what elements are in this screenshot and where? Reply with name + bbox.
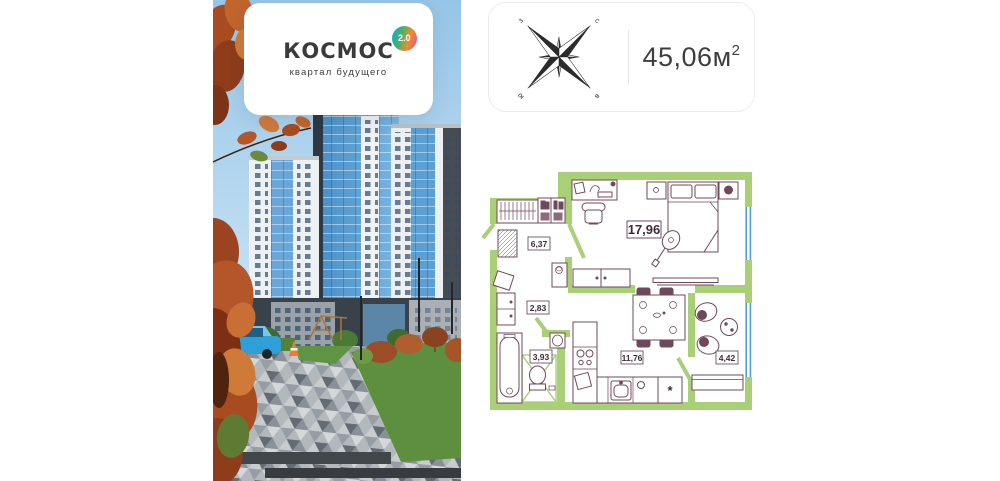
tv-console	[653, 278, 718, 285]
cutting-board	[574, 372, 591, 389]
apartment-listing-page: КОСМОС 2.0 квартал будущего	[0, 0, 1000, 481]
summary-card: з с ю в 45,06м2	[488, 2, 755, 112]
doormat	[498, 230, 517, 257]
dining-table	[633, 295, 685, 340]
logo-version-badge: 2.0	[392, 26, 417, 51]
room-label-corridor: 2,83	[530, 303, 547, 313]
room-label-hallway: 6,37	[531, 239, 548, 249]
shoe-cabinet	[538, 198, 565, 223]
room-label-bathroom: 3,93	[533, 352, 550, 362]
building-photo-panel: КОСМОС 2.0 квартал будущего	[213, 0, 461, 481]
wardrobe	[497, 200, 538, 223]
pillow	[695, 185, 716, 198]
logo-subtitle: квартал будущего	[290, 67, 388, 78]
corridor-cabinet	[497, 293, 515, 325]
logo-title: КОСМОС	[283, 39, 394, 63]
compass-rose-icon: з с ю в	[513, 11, 605, 103]
balcony-chair-1	[693, 300, 720, 324]
logo: КОСМОС 2.0	[283, 41, 394, 63]
entry-door-swing	[483, 224, 494, 238]
logo-card: КОСМОС 2.0 квартал будущего	[244, 3, 433, 115]
balcony-table	[721, 319, 738, 336]
sideboard	[573, 269, 630, 287]
bathtub	[497, 333, 522, 403]
dining-set	[633, 288, 685, 347]
compass-west-label: з	[516, 15, 525, 24]
balcony-bench	[692, 375, 743, 390]
compass-north-label: с	[593, 16, 602, 25]
pillow	[671, 185, 692, 198]
total-area: 45,06м2	[629, 42, 754, 73]
desk-chair	[582, 203, 605, 224]
floor-plan: 17,96 6,37 2,83 3,93 11,76 4,42 *	[478, 172, 754, 410]
kitchen-sink	[611, 381, 631, 400]
area-value: 45,06м	[643, 42, 732, 72]
toilet	[530, 366, 556, 390]
plant-cabinet	[552, 263, 567, 287]
compass-main-points	[527, 26, 590, 89]
room-label-balcony: 4,42	[719, 353, 736, 363]
desk	[572, 180, 617, 200]
compass-south-label: ю	[514, 91, 525, 102]
compass-box: з с ю в	[489, 11, 628, 103]
area-superscript: 2	[732, 42, 741, 59]
floor-plan-card: 17,96 6,37 2,83 3,93 11,76 4,42 *	[478, 172, 754, 410]
bathroom-sink	[550, 333, 565, 348]
living-window	[745, 207, 752, 260]
compass-east-label: в	[592, 92, 601, 101]
room-label-living: 17,96	[628, 222, 661, 237]
balcony-window	[745, 303, 752, 377]
nightstand-left	[647, 182, 666, 199]
living-door-swing	[569, 224, 584, 258]
room-label-kitchen: 11,76	[622, 353, 643, 363]
nightstand-right	[719, 182, 738, 199]
